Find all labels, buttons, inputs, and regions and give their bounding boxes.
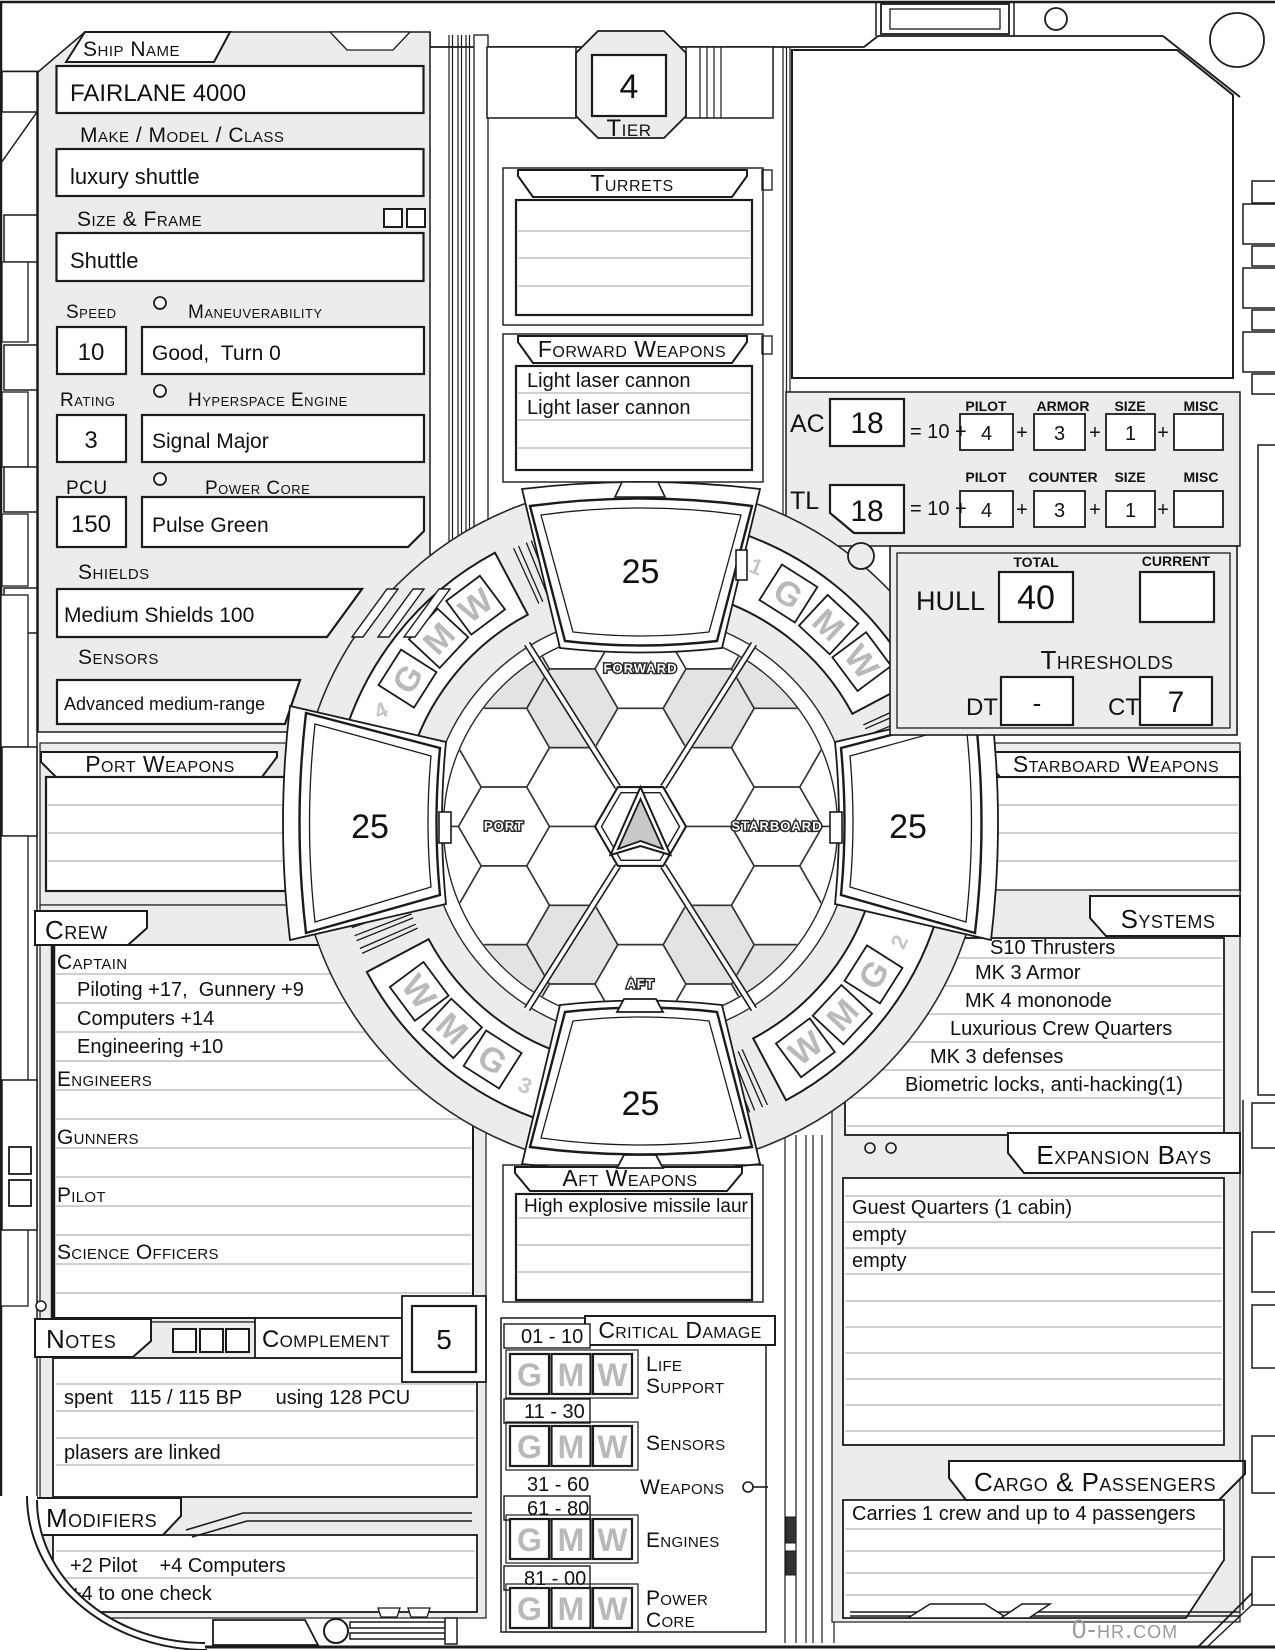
svg-text:18: 18 <box>850 495 883 528</box>
svg-text:Shields: Shields <box>78 561 150 584</box>
svg-text:Carries 1 crew and up to 4 pas: Carries 1 crew and up to 4 passengers <box>852 1503 1196 1525</box>
svg-text:PCU: PCU <box>66 478 108 499</box>
svg-text:Pulse Green: Pulse Green <box>152 514 269 537</box>
svg-text:MISC: MISC <box>1184 398 1219 414</box>
svg-text:Light laser cannon: Light laser cannon <box>527 397 690 419</box>
svg-text:+2 Pilot +4 Computers: +2 Pilot +4 Computers <box>70 1555 286 1577</box>
svg-text:+: + <box>1016 422 1028 444</box>
svg-text:SIZE: SIZE <box>1114 398 1145 414</box>
svg-text:empty: empty <box>852 1250 906 1272</box>
svg-text:0-hr.com: 0-hr.com <box>1072 1614 1178 1644</box>
svg-text:01 - 10: 01 - 10 <box>521 1326 583 1348</box>
svg-text:MISC: MISC <box>1184 469 1219 485</box>
svg-text:G: G <box>517 1591 542 1627</box>
svg-text:+: + <box>1157 499 1169 521</box>
svg-text:M: M <box>558 1357 585 1393</box>
svg-text:Computers +14: Computers +14 <box>77 1008 214 1030</box>
svg-text:Make / Model / Class: Make / Model / Class <box>80 124 284 147</box>
svg-text:11 - 30: 11 - 30 <box>524 1401 585 1423</box>
svg-text:40: 40 <box>1017 579 1055 617</box>
svg-text:-: - <box>1033 688 1042 718</box>
svg-text:W: W <box>597 1357 628 1393</box>
svg-text:81 - 00: 81 - 00 <box>524 1568 586 1590</box>
svg-text:Power: Power <box>646 1587 708 1610</box>
svg-text:DT: DT <box>966 694 998 721</box>
svg-text:25: 25 <box>351 808 389 846</box>
svg-text:empty: empty <box>852 1224 906 1246</box>
svg-text:7: 7 <box>1168 686 1185 719</box>
svg-text:spent 115 / 115 BP usin: spent 115 / 115 BP using 128 PCU <box>64 1387 410 1409</box>
svg-text:+: + <box>1016 499 1028 521</box>
svg-text:Science Officers: Science Officers <box>57 1241 219 1264</box>
svg-text:MK 3 defenses: MK 3 defenses <box>930 1046 1063 1068</box>
svg-text:25: 25 <box>622 1085 660 1123</box>
svg-text:G: G <box>517 1522 542 1558</box>
svg-text:Engineers: Engineers <box>57 1068 152 1091</box>
svg-text:Advanced medium-range: Advanced medium-range <box>64 694 265 714</box>
svg-text:Power Core: Power Core <box>205 478 310 499</box>
svg-text:W: W <box>597 1591 628 1627</box>
svg-text:= 10 +: = 10 + <box>910 498 967 520</box>
svg-text:G: G <box>517 1357 542 1393</box>
svg-text:Sensors: Sensors <box>78 646 159 669</box>
svg-text:= 10 +: = 10 + <box>910 421 967 443</box>
svg-text:3: 3 <box>84 427 97 454</box>
svg-text:3: 3 <box>1054 423 1065 445</box>
svg-text:Speed: Speed <box>66 302 117 323</box>
svg-text:FAIRLANE 4000: FAIRLANE 4000 <box>70 80 246 107</box>
svg-text:Biometric locks, anti-hacking(: Biometric locks, anti-hacking(1) <box>905 1074 1183 1096</box>
svg-text:Core: Core <box>646 1609 695 1632</box>
svg-text:3: 3 <box>1054 500 1065 522</box>
svg-text:5: 5 <box>436 1324 452 1355</box>
svg-text:CT: CT <box>1108 694 1140 721</box>
svg-text:Rating: Rating <box>60 390 115 411</box>
svg-text:150: 150 <box>71 511 111 538</box>
svg-text:MK 4 mononode: MK 4 mononode <box>965 990 1112 1012</box>
svg-text:CURRENT: CURRENT <box>1142 553 1211 569</box>
svg-text:Guest Quarters (1 cabin): Guest Quarters (1 cabin) <box>852 1197 1072 1219</box>
svg-text:18: 18 <box>850 407 883 440</box>
svg-text:PILOT: PILOT <box>965 469 1007 485</box>
svg-text:W: W <box>597 1429 628 1465</box>
svg-text:Life: Life <box>646 1353 682 1376</box>
svg-text:Notes: Notes <box>46 1324 116 1354</box>
svg-text:AC: AC <box>790 410 825 438</box>
svg-text:4: 4 <box>981 423 992 445</box>
svg-text:25: 25 <box>622 553 660 591</box>
svg-text:Critical Damage: Critical Damage <box>598 1317 761 1343</box>
svg-text:COUNTER: COUNTER <box>1028 469 1097 485</box>
svg-text:M: M <box>558 1522 585 1558</box>
svg-text:Expansion Bays: Expansion Bays <box>1036 1140 1211 1170</box>
svg-text:31 - 60: 31 - 60 <box>527 1474 589 1496</box>
svg-text:+: + <box>1157 422 1169 444</box>
svg-text:Captain: Captain <box>57 951 127 974</box>
svg-text:Support: Support <box>646 1375 724 1398</box>
svg-text:Maneuverability: Maneuverability <box>188 302 323 323</box>
svg-text:Complement: Complement <box>262 1326 390 1353</box>
svg-text:1: 1 <box>1125 423 1136 445</box>
svg-text:HULL: HULL <box>916 586 985 616</box>
svg-text:Medium Shields 100: Medium Shields 100 <box>64 604 254 627</box>
svg-text:M: M <box>558 1429 585 1465</box>
svg-text:High explosive missile laur: High explosive missile laur <box>524 1196 749 1217</box>
svg-text:Piloting +17, Gunnery +9: Piloting +17, Gunnery +9 <box>77 979 304 1001</box>
svg-text:Shuttle: Shuttle <box>70 248 139 273</box>
svg-text:Systems: Systems <box>1121 904 1216 934</box>
svg-text:1: 1 <box>1125 500 1136 522</box>
svg-text:+: + <box>1089 422 1101 444</box>
svg-text:Size & Frame: Size & Frame <box>77 208 202 231</box>
svg-text:Starboard Weapons: Starboard Weapons <box>1013 751 1219 777</box>
svg-text:Signal Major: Signal Major <box>152 430 269 453</box>
svg-text:Crew: Crew <box>45 915 108 945</box>
svg-text:STARBOARD: STARBOARD <box>731 818 822 833</box>
svg-text:61 - 80: 61 - 80 <box>527 1498 589 1520</box>
svg-text:Port Weapons: Port Weapons <box>85 751 235 777</box>
svg-text:Engineering +10: Engineering +10 <box>77 1036 223 1058</box>
svg-text:Thresholds: Thresholds <box>1041 645 1174 675</box>
svg-text:Sensors: Sensors <box>646 1432 725 1455</box>
svg-text:+4 to one check: +4 to one check <box>70 1583 213 1605</box>
svg-text:PORT: PORT <box>484 818 524 833</box>
svg-text:MK 3 Armor: MK 3 Armor <box>975 962 1081 984</box>
svg-text:M: M <box>558 1591 585 1627</box>
svg-text:SIZE: SIZE <box>1114 469 1145 485</box>
svg-text:ARMOR: ARMOR <box>1037 398 1090 414</box>
svg-text:G: G <box>517 1429 542 1465</box>
svg-text:Hyperspace Engine: Hyperspace Engine <box>188 390 348 411</box>
svg-text:25: 25 <box>889 808 927 846</box>
svg-text:4: 4 <box>981 500 992 522</box>
svg-text:plasers are linked: plasers are linked <box>64 1442 221 1464</box>
svg-text:Luxurious Crew Quarters: Luxurious Crew Quarters <box>950 1018 1172 1040</box>
svg-text:Weapons: Weapons <box>640 1476 724 1499</box>
svg-text:PILOT: PILOT <box>965 398 1007 414</box>
svg-text:4: 4 <box>620 68 639 106</box>
svg-text:Tier: Tier <box>607 115 652 142</box>
svg-text:Modifiers: Modifiers <box>46 1503 157 1533</box>
svg-text:luxury shuttle: luxury shuttle <box>70 164 200 189</box>
svg-text:+: + <box>1089 499 1101 521</box>
svg-text:Turrets: Turrets <box>590 170 673 196</box>
svg-text:10: 10 <box>78 339 105 366</box>
svg-text:W: W <box>597 1522 628 1558</box>
svg-text:Cargo & Passengers: Cargo & Passengers <box>974 1467 1216 1497</box>
svg-text:Ship Name: Ship Name <box>83 38 180 61</box>
svg-text:Pilot: Pilot <box>57 1184 106 1207</box>
svg-text:Good, Turn 0: Good, Turn 0 <box>152 342 281 365</box>
svg-text:TOTAL: TOTAL <box>1013 554 1059 570</box>
svg-text:Light laser cannon: Light laser cannon <box>527 370 690 392</box>
svg-text:Gunners: Gunners <box>57 1126 139 1149</box>
svg-text:Engines: Engines <box>646 1529 720 1552</box>
svg-text:FORWARD: FORWARD <box>604 661 678 676</box>
svg-text:S10 Thrusters: S10 Thrusters <box>990 937 1115 959</box>
svg-text:Forward Weapons: Forward Weapons <box>538 336 726 362</box>
svg-text:AFT: AFT <box>626 976 654 991</box>
svg-text:TL: TL <box>790 487 819 515</box>
